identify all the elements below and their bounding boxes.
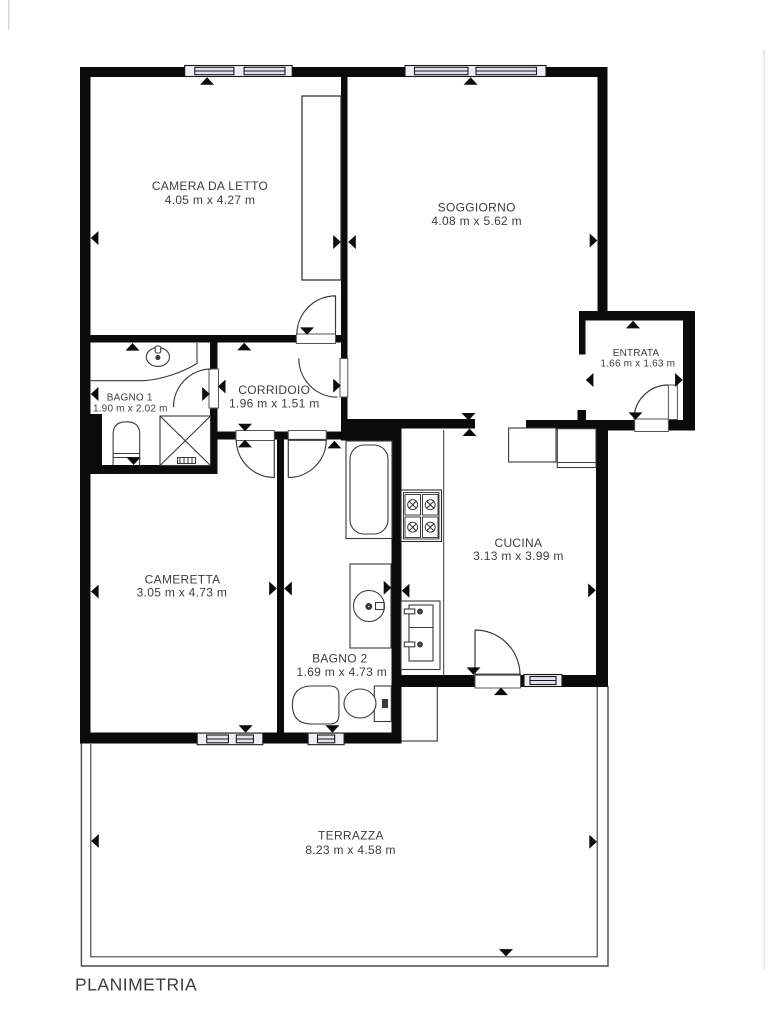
svg-text:CORRIDOIO: CORRIDOIO <box>238 383 310 397</box>
svg-text:PLANIMETRIA: PLANIMETRIA <box>75 975 197 995</box>
svg-text:SOGGIORNO: SOGGIORNO <box>438 201 516 215</box>
svg-text:BAGNO 1: BAGNO 1 <box>107 393 153 404</box>
svg-text:BAGNO 2: BAGNO 2 <box>312 652 367 666</box>
svg-text:CUCINA: CUCINA <box>494 536 542 550</box>
svg-text:TERRAZZA: TERRAZZA <box>318 829 384 843</box>
svg-text:CAMERA DA LETTO: CAMERA DA LETTO <box>152 179 268 193</box>
svg-text:8.23 m x 4.58 m: 8.23 m x 4.58 m <box>305 843 396 857</box>
svg-text:1.90 m x 2.02 m: 1.90 m x 2.02 m <box>93 404 168 415</box>
svg-text:ENTRATA: ENTRATA <box>613 348 660 359</box>
svg-text:4.05 m x 4.27 m: 4.05 m x 4.27 m <box>165 193 256 207</box>
svg-text:1.96 m x 1.51 m: 1.96 m x 1.51 m <box>229 397 320 411</box>
svg-text:4.08 m x 5.62 m: 4.08 m x 5.62 m <box>431 214 522 228</box>
svg-text:1.69 m x 4.73 m: 1.69 m x 4.73 m <box>297 665 388 679</box>
svg-text:3.05 m x 4.73 m: 3.05 m x 4.73 m <box>137 586 228 600</box>
svg-text:3.13 m x 3.99 m: 3.13 m x 3.99 m <box>473 549 564 563</box>
svg-text:1.66 m x 1.63 m: 1.66 m x 1.63 m <box>600 359 675 370</box>
svg-text:CAMERETTA: CAMERETTA <box>145 572 221 586</box>
